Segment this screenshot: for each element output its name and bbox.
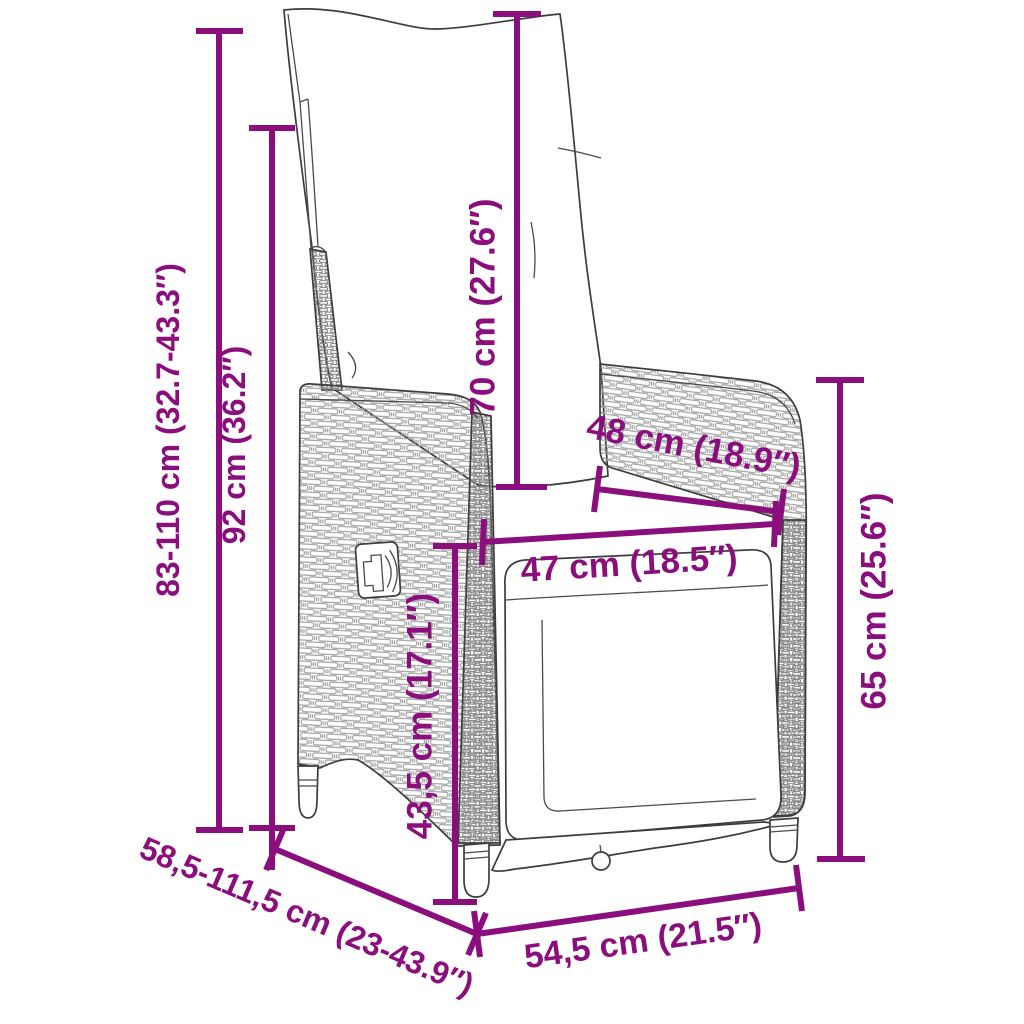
dim-seat-depth: 54,5 cm (21.5″) [474,865,802,976]
dim-back-cushion-height-label: 70 cm (27.6″) [463,198,502,415]
dim-seat-depth-label: 54,5 cm (21.5″) [522,905,764,976]
caster-wheel [592,852,610,870]
dim-armrest-height-label: 65 cm (25.6″) [854,492,893,709]
front-left-leg [298,766,318,818]
dim-backrest-height: 92 cm (36.2″) [216,128,295,828]
dim-depth-range: 58,5-111,5 cm (23-43.9″) [135,828,486,1003]
seat-cushion [505,550,781,840]
dimension-diagram: 83-110 cm (32.7-43.3″) 92 cm (36.2″) 70 … [0,0,1024,1024]
chair-dimension-drawing: 83-110 cm (32.7-43.3″) 92 cm (36.2″) 70 … [0,0,1024,1024]
dim-total-height-label: 83-110 cm (32.7-43.3″) [150,263,186,597]
dim-seat-width: 47 cm (18.5″) [482,501,776,590]
dim-backrest-height-label: 92 cm (36.2″) [216,346,252,545]
dim-seat-height-label: 43,5 cm (17.1″) [400,593,439,839]
dim-armrest-height: 65 cm (25.6″) [816,380,893,859]
recline-adjustment-knob-icon [355,542,401,599]
